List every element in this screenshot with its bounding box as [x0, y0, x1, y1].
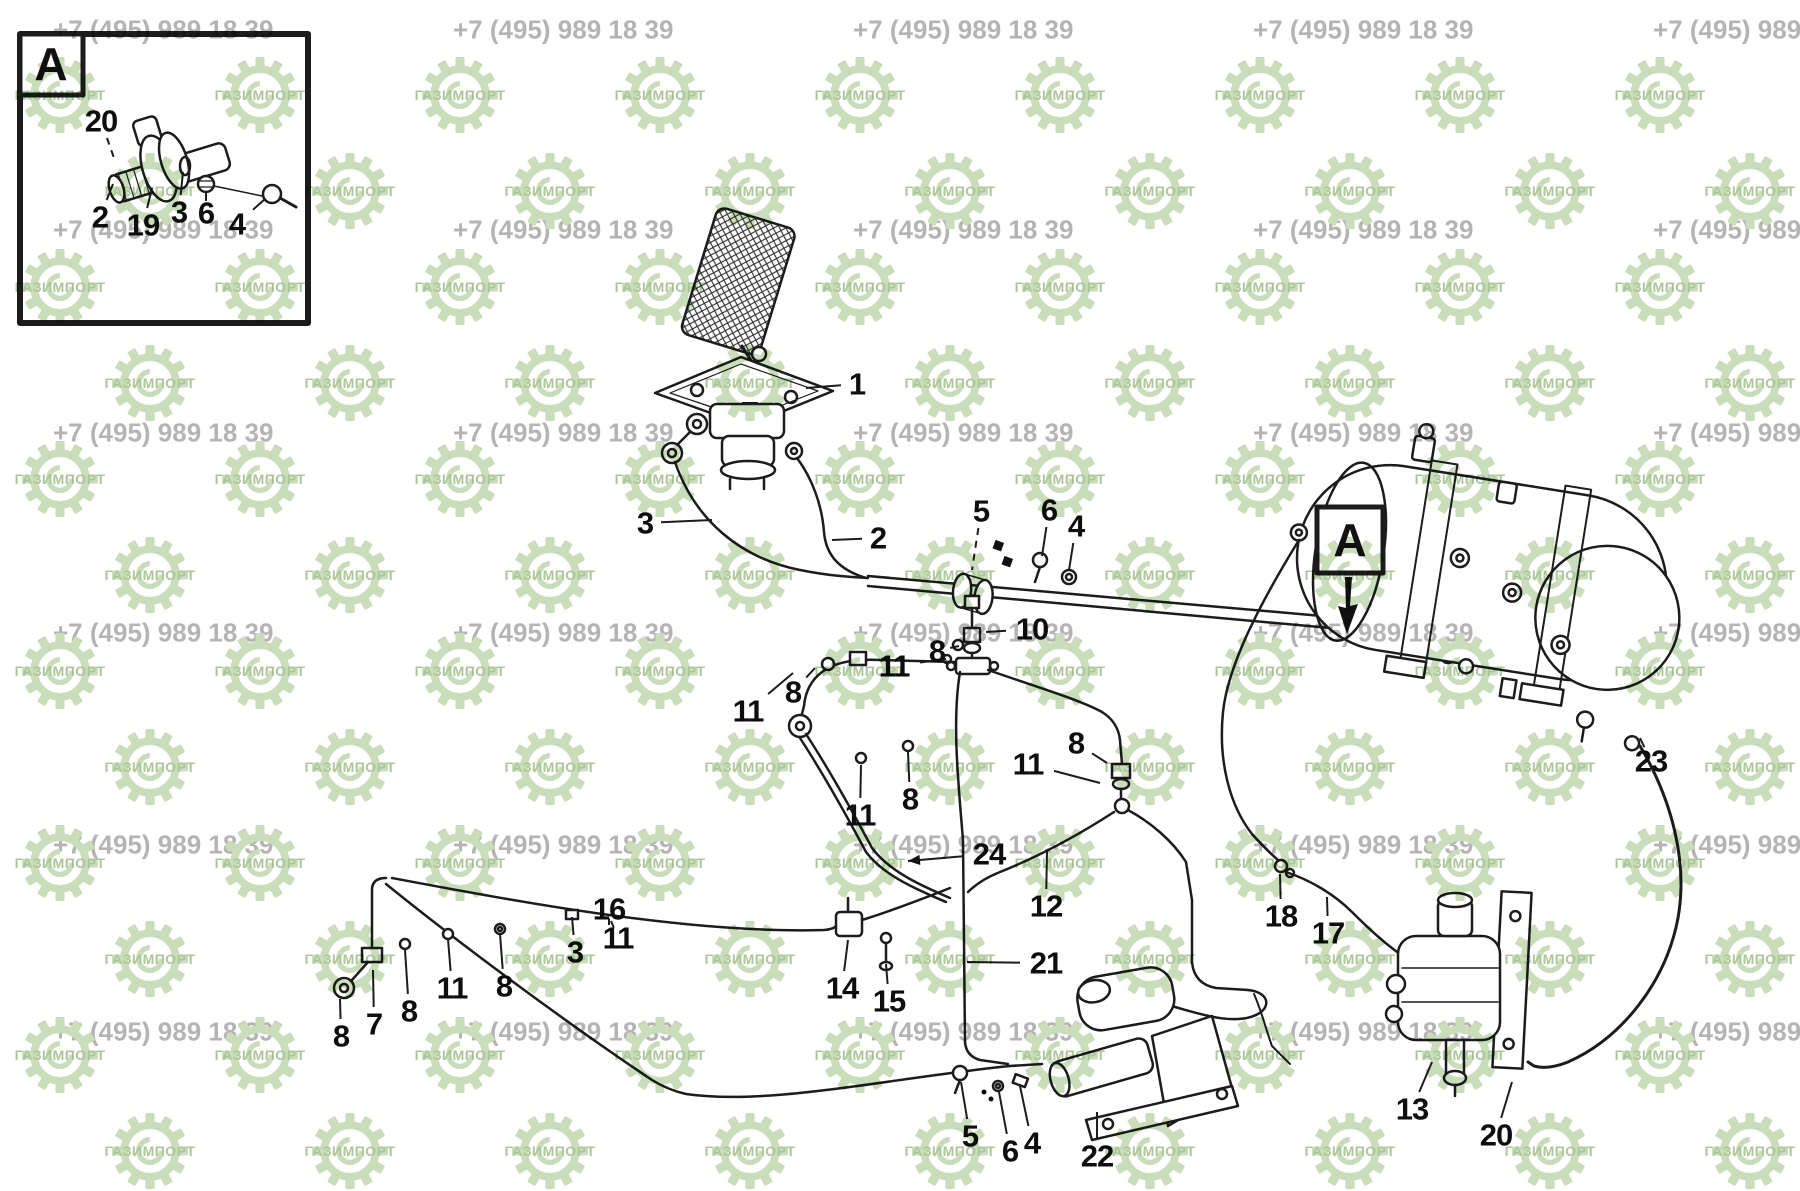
leader-line: [1501, 1082, 1512, 1118]
leader-line: [572, 917, 574, 935]
leader-line: [405, 950, 408, 994]
leader-line: [768, 673, 793, 694]
leader-line: [1640, 738, 1644, 747]
leader-line: [908, 752, 909, 782]
leader-line: [999, 1092, 1007, 1134]
leader-line: [806, 385, 841, 388]
leader-line: [107, 184, 113, 200]
leader-line: [950, 646, 959, 648]
leader-line: [340, 999, 341, 1019]
leader-line: [611, 921, 614, 928]
leader-line: [661, 520, 712, 522]
parts-diagram-page: A A 202193641325641081111881124128112114…: [0, 0, 1800, 1191]
leader-line: [844, 940, 848, 971]
leader-line: [832, 539, 862, 540]
leader-line: [806, 668, 815, 678]
leader-line: [181, 172, 183, 195]
leader-line: [253, 199, 265, 210]
leader-line: [1020, 1086, 1028, 1126]
leader-line: [920, 659, 946, 663]
leader-line: [886, 964, 888, 984]
leader-line: [1069, 543, 1073, 570]
leader-line: [972, 528, 978, 570]
leader-line: [107, 138, 114, 158]
leader-line: [1054, 771, 1100, 783]
leader-line: [1042, 527, 1046, 556]
leader-line: [967, 962, 1020, 963]
leader-line: [147, 188, 152, 208]
leader-line: [500, 934, 503, 969]
leader-line: [961, 1082, 967, 1119]
leader-line: [1092, 753, 1107, 763]
leader-line: [1419, 1062, 1432, 1092]
leader-line: [986, 631, 1006, 632]
leader-lines: [0, 0, 1800, 1191]
leader-line: [1327, 897, 1328, 916]
leader-line: [1280, 874, 1281, 899]
leader-line: [448, 939, 451, 971]
leader-line: [1046, 851, 1047, 889]
leader-line: [373, 970, 374, 1007]
leader-line: [860, 765, 861, 798]
